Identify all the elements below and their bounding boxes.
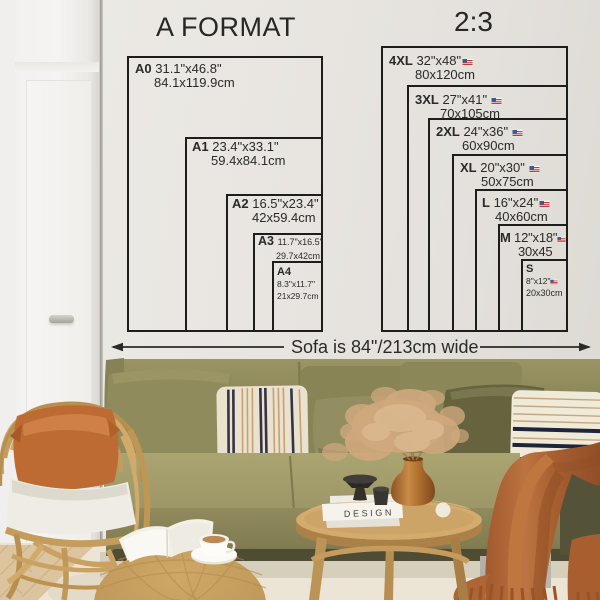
svg-text:DESIGN: DESIGN: [344, 507, 394, 519]
